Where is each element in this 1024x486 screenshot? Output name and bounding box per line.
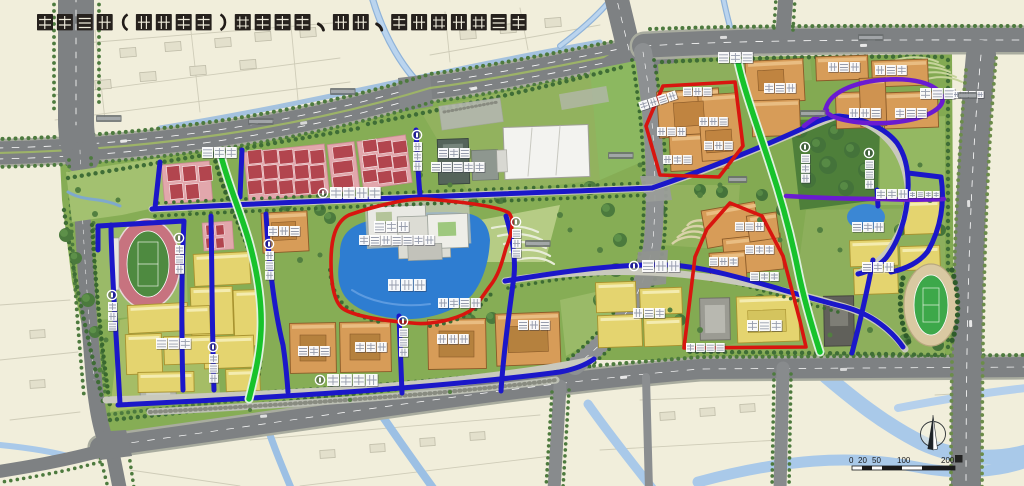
svg-text:200: 200	[941, 456, 955, 465]
svg-text:0: 0	[849, 456, 854, 465]
svg-text:100: 100	[897, 456, 911, 465]
svg-text:50: 50	[872, 456, 881, 465]
svg-text:20: 20	[858, 456, 867, 465]
